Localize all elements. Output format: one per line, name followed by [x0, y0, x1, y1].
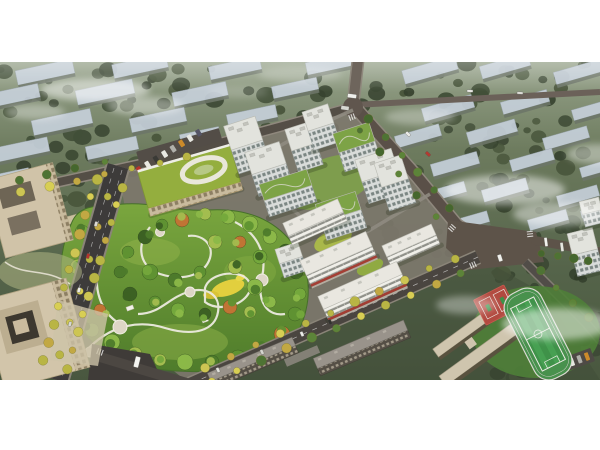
park-tree: [152, 299, 159, 306]
background-tree: [523, 127, 531, 133]
rendering-page: [0, 0, 600, 450]
background-tree: [151, 134, 161, 142]
park-tree: [177, 212, 185, 220]
vehicle: [517, 92, 523, 95]
park-tree: [244, 221, 254, 231]
street-tree: [445, 204, 453, 212]
street-tree: [87, 193, 94, 200]
street-tree: [538, 250, 545, 257]
street-tree: [102, 159, 108, 165]
street-tree: [101, 171, 107, 177]
park-tree: [121, 268, 128, 275]
street-tree: [108, 219, 115, 226]
street-tree: [431, 186, 438, 193]
street-tree: [44, 338, 54, 348]
park-tree: [123, 292, 131, 300]
street-tree: [432, 280, 441, 289]
street-tree: [350, 296, 360, 306]
street-tree: [307, 333, 317, 343]
street-tree: [381, 301, 390, 310]
park-tree: [195, 272, 202, 279]
mist-cloud: [258, 66, 342, 82]
street-tree: [382, 133, 389, 140]
park-tree: [262, 296, 269, 303]
background-tree: [48, 141, 63, 153]
background-tree: [532, 118, 540, 125]
street-tree: [74, 229, 85, 240]
street-tree: [183, 153, 191, 161]
street-tree: [413, 168, 422, 177]
park-tree: [220, 213, 228, 221]
street-tree: [45, 182, 55, 192]
background-tree: [94, 124, 109, 137]
street-tree: [375, 287, 383, 295]
street-tree: [49, 320, 59, 330]
background-tree: [67, 191, 86, 207]
street-tree: [433, 214, 439, 220]
mist-cloud: [107, 97, 183, 115]
background-tree: [554, 151, 566, 161]
street-tree: [56, 351, 64, 359]
street-tree: [364, 114, 373, 123]
street-tree: [42, 170, 51, 179]
background-tree: [65, 150, 78, 161]
park-tree: [251, 285, 261, 295]
background-tree: [558, 115, 572, 127]
mist-cloud: [208, 86, 268, 98]
park-tree: [145, 230, 153, 238]
street-tree: [584, 257, 592, 265]
park-tree: [156, 222, 163, 229]
street-tree: [407, 292, 414, 299]
street-tree: [200, 363, 209, 372]
street-tree: [129, 165, 135, 171]
street-tree: [104, 193, 111, 200]
aerial-rendering: [0, 62, 600, 380]
park-tree: [263, 228, 271, 236]
street-tree: [357, 128, 363, 134]
street-tree: [69, 347, 76, 354]
street-tree: [118, 183, 127, 192]
park-tree: [196, 211, 203, 218]
street-tree: [102, 237, 109, 244]
street-tree: [413, 191, 421, 199]
street-tree: [54, 302, 62, 310]
street-tree: [157, 160, 163, 166]
street-tree: [569, 254, 578, 263]
street-tree: [16, 187, 25, 196]
street-tree: [302, 320, 309, 327]
mist-cloud: [5, 104, 65, 120]
street-tree: [15, 176, 23, 184]
background-tree: [444, 126, 453, 134]
park-tree: [255, 252, 263, 260]
street-tree: [227, 353, 234, 360]
park-tree: [213, 236, 221, 244]
park-tree: [232, 239, 239, 246]
street-tree: [457, 270, 464, 277]
street-tree: [276, 329, 284, 337]
park-tree: [293, 294, 300, 301]
street-tree: [80, 210, 89, 219]
street-tree: [395, 171, 401, 177]
street-tree: [256, 356, 266, 366]
street-tree: [63, 365, 73, 375]
street-tree: [282, 343, 292, 353]
vehicle: [467, 90, 473, 93]
street-tree: [375, 147, 384, 156]
street-tree: [79, 311, 86, 318]
mist-cloud: [513, 202, 600, 226]
park-tree: [296, 310, 304, 318]
mist-cloud: [385, 109, 455, 125]
street-tree: [113, 201, 120, 208]
street-tree: [252, 342, 259, 349]
street-tree: [73, 178, 80, 185]
park-tree: [142, 266, 152, 276]
street-tree: [327, 310, 333, 316]
street-tree: [71, 164, 79, 172]
street-tree: [357, 312, 365, 320]
park-tree: [174, 279, 182, 287]
street-tree: [537, 266, 546, 275]
crosswalk: [527, 231, 534, 237]
background-tree: [556, 160, 575, 176]
street-tree: [65, 265, 73, 273]
street-tree: [92, 174, 103, 185]
background-tree: [55, 162, 70, 174]
street-tree: [89, 273, 99, 283]
street-tree: [426, 265, 433, 272]
mist-cloud: [436, 296, 496, 314]
street-tree: [333, 324, 341, 332]
park-tree: [157, 356, 164, 363]
street-tree: [233, 367, 240, 374]
park-tree: [123, 252, 130, 259]
street-tree: [569, 299, 577, 307]
street-tree: [554, 253, 561, 260]
street-tree: [451, 255, 459, 263]
park-tree: [200, 314, 207, 321]
park-tree: [232, 260, 240, 268]
park-plaza: [113, 320, 127, 334]
street-tree: [60, 284, 67, 291]
park-tree: [247, 310, 254, 317]
street-tree: [38, 355, 48, 365]
street-tree: [553, 285, 559, 291]
street-tree: [84, 292, 93, 301]
street-tree: [95, 256, 105, 266]
street-tree: [70, 248, 79, 257]
park-plaza: [185, 287, 195, 297]
street-tree: [401, 276, 409, 284]
street-tree: [399, 152, 406, 159]
street-tree: [73, 327, 83, 337]
mist-cloud: [445, 175, 565, 205]
background-tree: [497, 154, 510, 165]
park-tree: [175, 309, 183, 317]
park-tree: [177, 356, 187, 366]
park-tree: [228, 298, 236, 306]
